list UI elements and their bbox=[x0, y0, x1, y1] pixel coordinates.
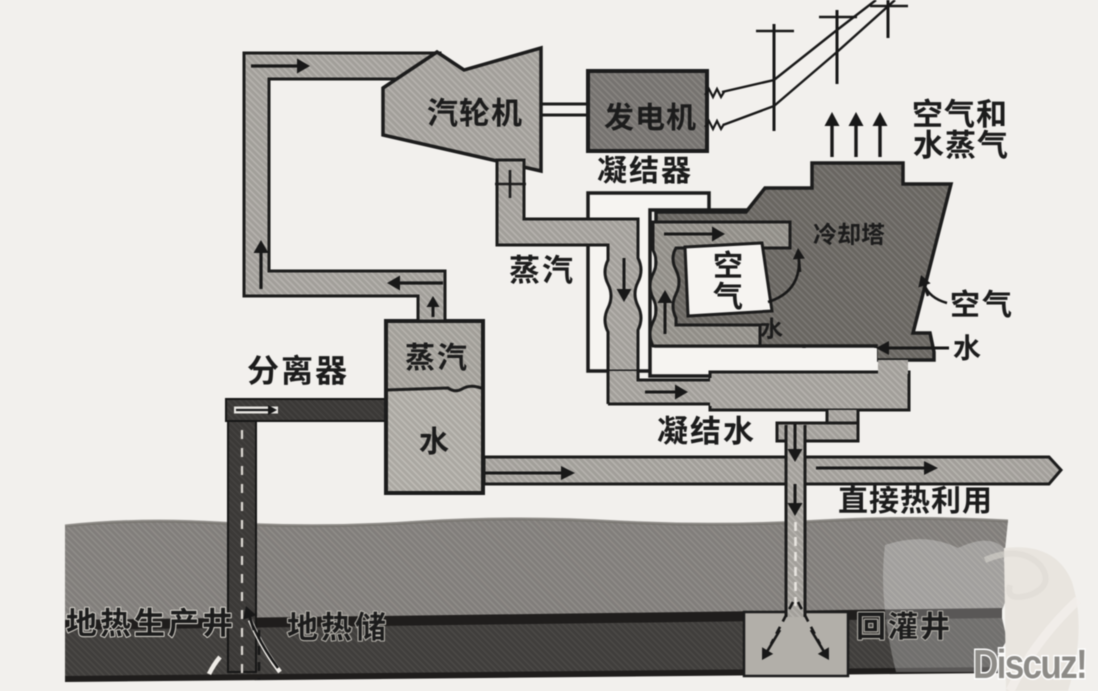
svg-text:Discuz!: Discuz! bbox=[973, 641, 1086, 687]
